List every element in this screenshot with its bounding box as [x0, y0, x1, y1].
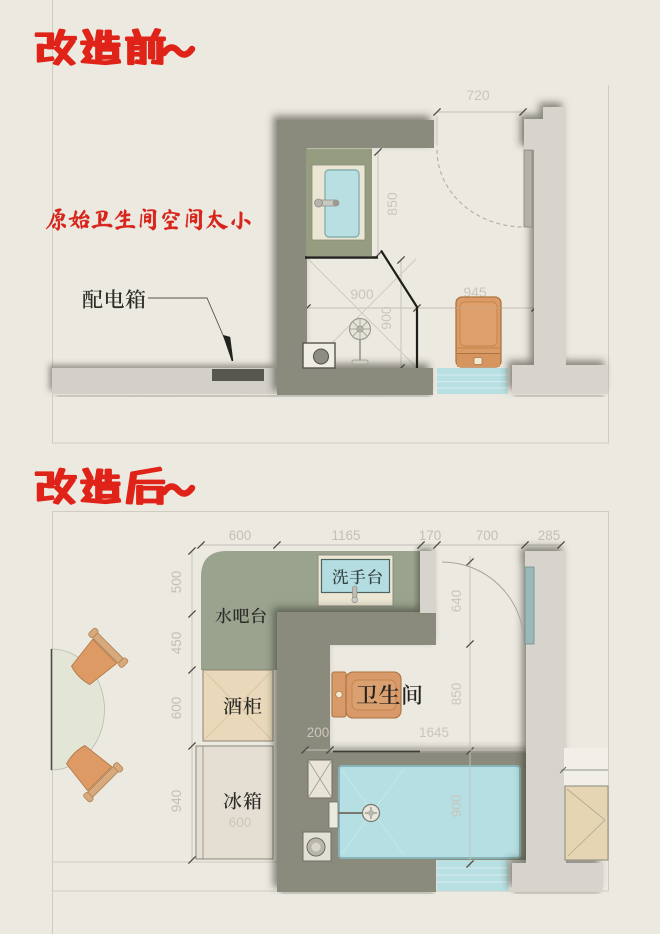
- svg-text:850: 850: [384, 192, 400, 216]
- svg-text:600: 600: [229, 815, 252, 830]
- svg-text:200: 200: [307, 725, 330, 740]
- svg-text:1165: 1165: [331, 528, 360, 543]
- svg-text:450: 450: [169, 632, 184, 655]
- svg-text:600: 600: [169, 697, 184, 720]
- svg-text:640: 640: [449, 590, 464, 613]
- svg-text:170: 170: [419, 528, 442, 543]
- svg-text:285: 285: [538, 528, 561, 543]
- svg-text:900: 900: [350, 286, 374, 302]
- svg-text:500: 500: [169, 571, 184, 594]
- svg-text:720: 720: [466, 87, 490, 103]
- svg-text:900: 900: [449, 795, 464, 818]
- svg-text:1645: 1645: [419, 725, 449, 740]
- svg-text:940: 940: [169, 790, 184, 813]
- svg-text:700: 700: [476, 528, 499, 543]
- svg-text:600: 600: [229, 528, 252, 543]
- svg-text:850: 850: [449, 683, 464, 706]
- svg-text:900: 900: [378, 306, 394, 330]
